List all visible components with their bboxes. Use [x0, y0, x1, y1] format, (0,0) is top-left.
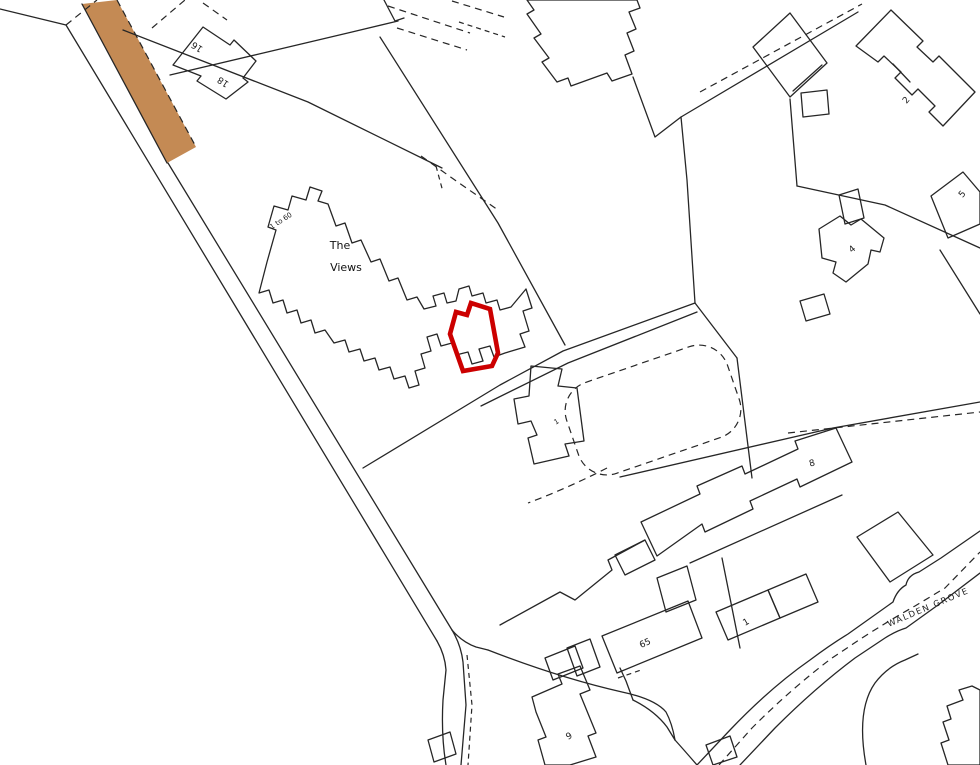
- the-views-group: 1 to 60 The Views: [259, 187, 532, 388]
- road-line: [0, 9, 66, 25]
- building-16-18: [173, 27, 256, 99]
- building: [753, 13, 827, 97]
- south-building-group: 1: [514, 366, 584, 464]
- boundary: [797, 186, 980, 248]
- surface-strip-group: [82, 0, 196, 163]
- surface-strip: [82, 0, 196, 163]
- boundary-dashed: [421, 156, 498, 210]
- building: [514, 366, 584, 464]
- road-dashed: [700, 4, 862, 92]
- boundary-dashed: [152, 0, 185, 28]
- building-9: [532, 666, 596, 765]
- house-number-2: 2: [901, 95, 912, 106]
- boundary: [481, 312, 697, 406]
- verge-curve: [863, 654, 918, 765]
- boundary-dashed: [459, 22, 505, 37]
- building: [615, 540, 655, 575]
- site-plan-svg: 16 18 1 to 60 The Views 1: [0, 0, 980, 765]
- views-name-line2: Views: [330, 261, 362, 274]
- building: [768, 574, 818, 618]
- building: [941, 686, 980, 765]
- house-number-65: 65: [638, 637, 653, 651]
- lane-west-curve: [437, 641, 446, 765]
- house-number-8: 8: [808, 458, 816, 469]
- boundary: [690, 495, 842, 563]
- boundary-dashed: [203, 3, 227, 20]
- parcel-boundary: [380, 37, 565, 345]
- building: [857, 512, 933, 582]
- road-edge: [681, 12, 858, 117]
- building: [567, 639, 600, 676]
- building-65: [602, 601, 702, 673]
- terrace-8-group: 8: [641, 428, 852, 648]
- house-number-9: 9: [565, 731, 575, 743]
- highlighted-plot: [450, 303, 498, 371]
- boundary: [500, 540, 645, 625]
- map-canvas: 16 18 1 to 60 The Views 1: [0, 0, 980, 765]
- house-number-small: 1: [553, 417, 561, 426]
- boundary-dashed: [397, 28, 467, 50]
- building-1: [716, 590, 780, 640]
- building-2: [856, 10, 975, 126]
- bottom-right-group: WALDEN GROVE: [857, 512, 980, 765]
- lane-west-edge: [66, 25, 437, 641]
- building: [801, 90, 829, 117]
- bottom-cluster-group: 65 1 9: [428, 540, 818, 765]
- boundary: [790, 99, 797, 186]
- walden-grove-centerline: [719, 552, 980, 765]
- building: [545, 646, 583, 680]
- dashed-track: [528, 468, 607, 503]
- road-mouth-link: [620, 668, 633, 700]
- building-8: [641, 428, 852, 556]
- upper-road-dashed: [788, 412, 980, 433]
- house-number-1: 1: [742, 617, 752, 629]
- boundary: [940, 250, 980, 314]
- parcel-boundary: [633, 77, 695, 303]
- boundary-dashed: [452, 1, 504, 17]
- road-mouth-west: [633, 700, 675, 740]
- views-name-line1: The: [329, 239, 351, 252]
- lane-east-edge: [168, 163, 452, 630]
- house-number-5: 5: [957, 189, 968, 200]
- top-center-group: [380, 0, 695, 345]
- wg-west-tip: [675, 740, 697, 765]
- building: [800, 294, 830, 321]
- the-views-building: [259, 187, 532, 388]
- top-right-group: 2 5 4: [681, 4, 980, 321]
- house-number-4: 4: [847, 244, 858, 256]
- building-5: [931, 172, 980, 238]
- boundary: [737, 358, 752, 478]
- building: [428, 732, 456, 762]
- street-name-label: WALDEN GROVE: [886, 586, 971, 629]
- house-number-18: 18: [216, 74, 231, 89]
- building: [527, 0, 640, 86]
- dashed-loop: [557, 337, 749, 483]
- boundary-dashed: [436, 166, 443, 192]
- building-wall: [793, 65, 822, 91]
- lane-dashed-path: [467, 655, 472, 765]
